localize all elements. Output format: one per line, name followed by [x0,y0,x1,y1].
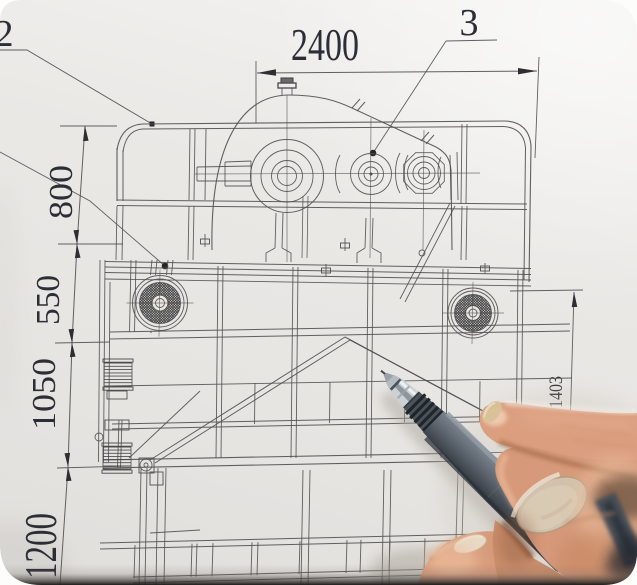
svg-text:2: 2 [0,13,14,55]
svg-text:2400: 2400 [291,19,359,70]
svg-text:800: 800 [43,165,80,219]
svg-text:1050: 1050 [26,358,63,430]
svg-text:550: 550 [30,275,67,325]
svg-text:3: 3 [460,2,479,44]
